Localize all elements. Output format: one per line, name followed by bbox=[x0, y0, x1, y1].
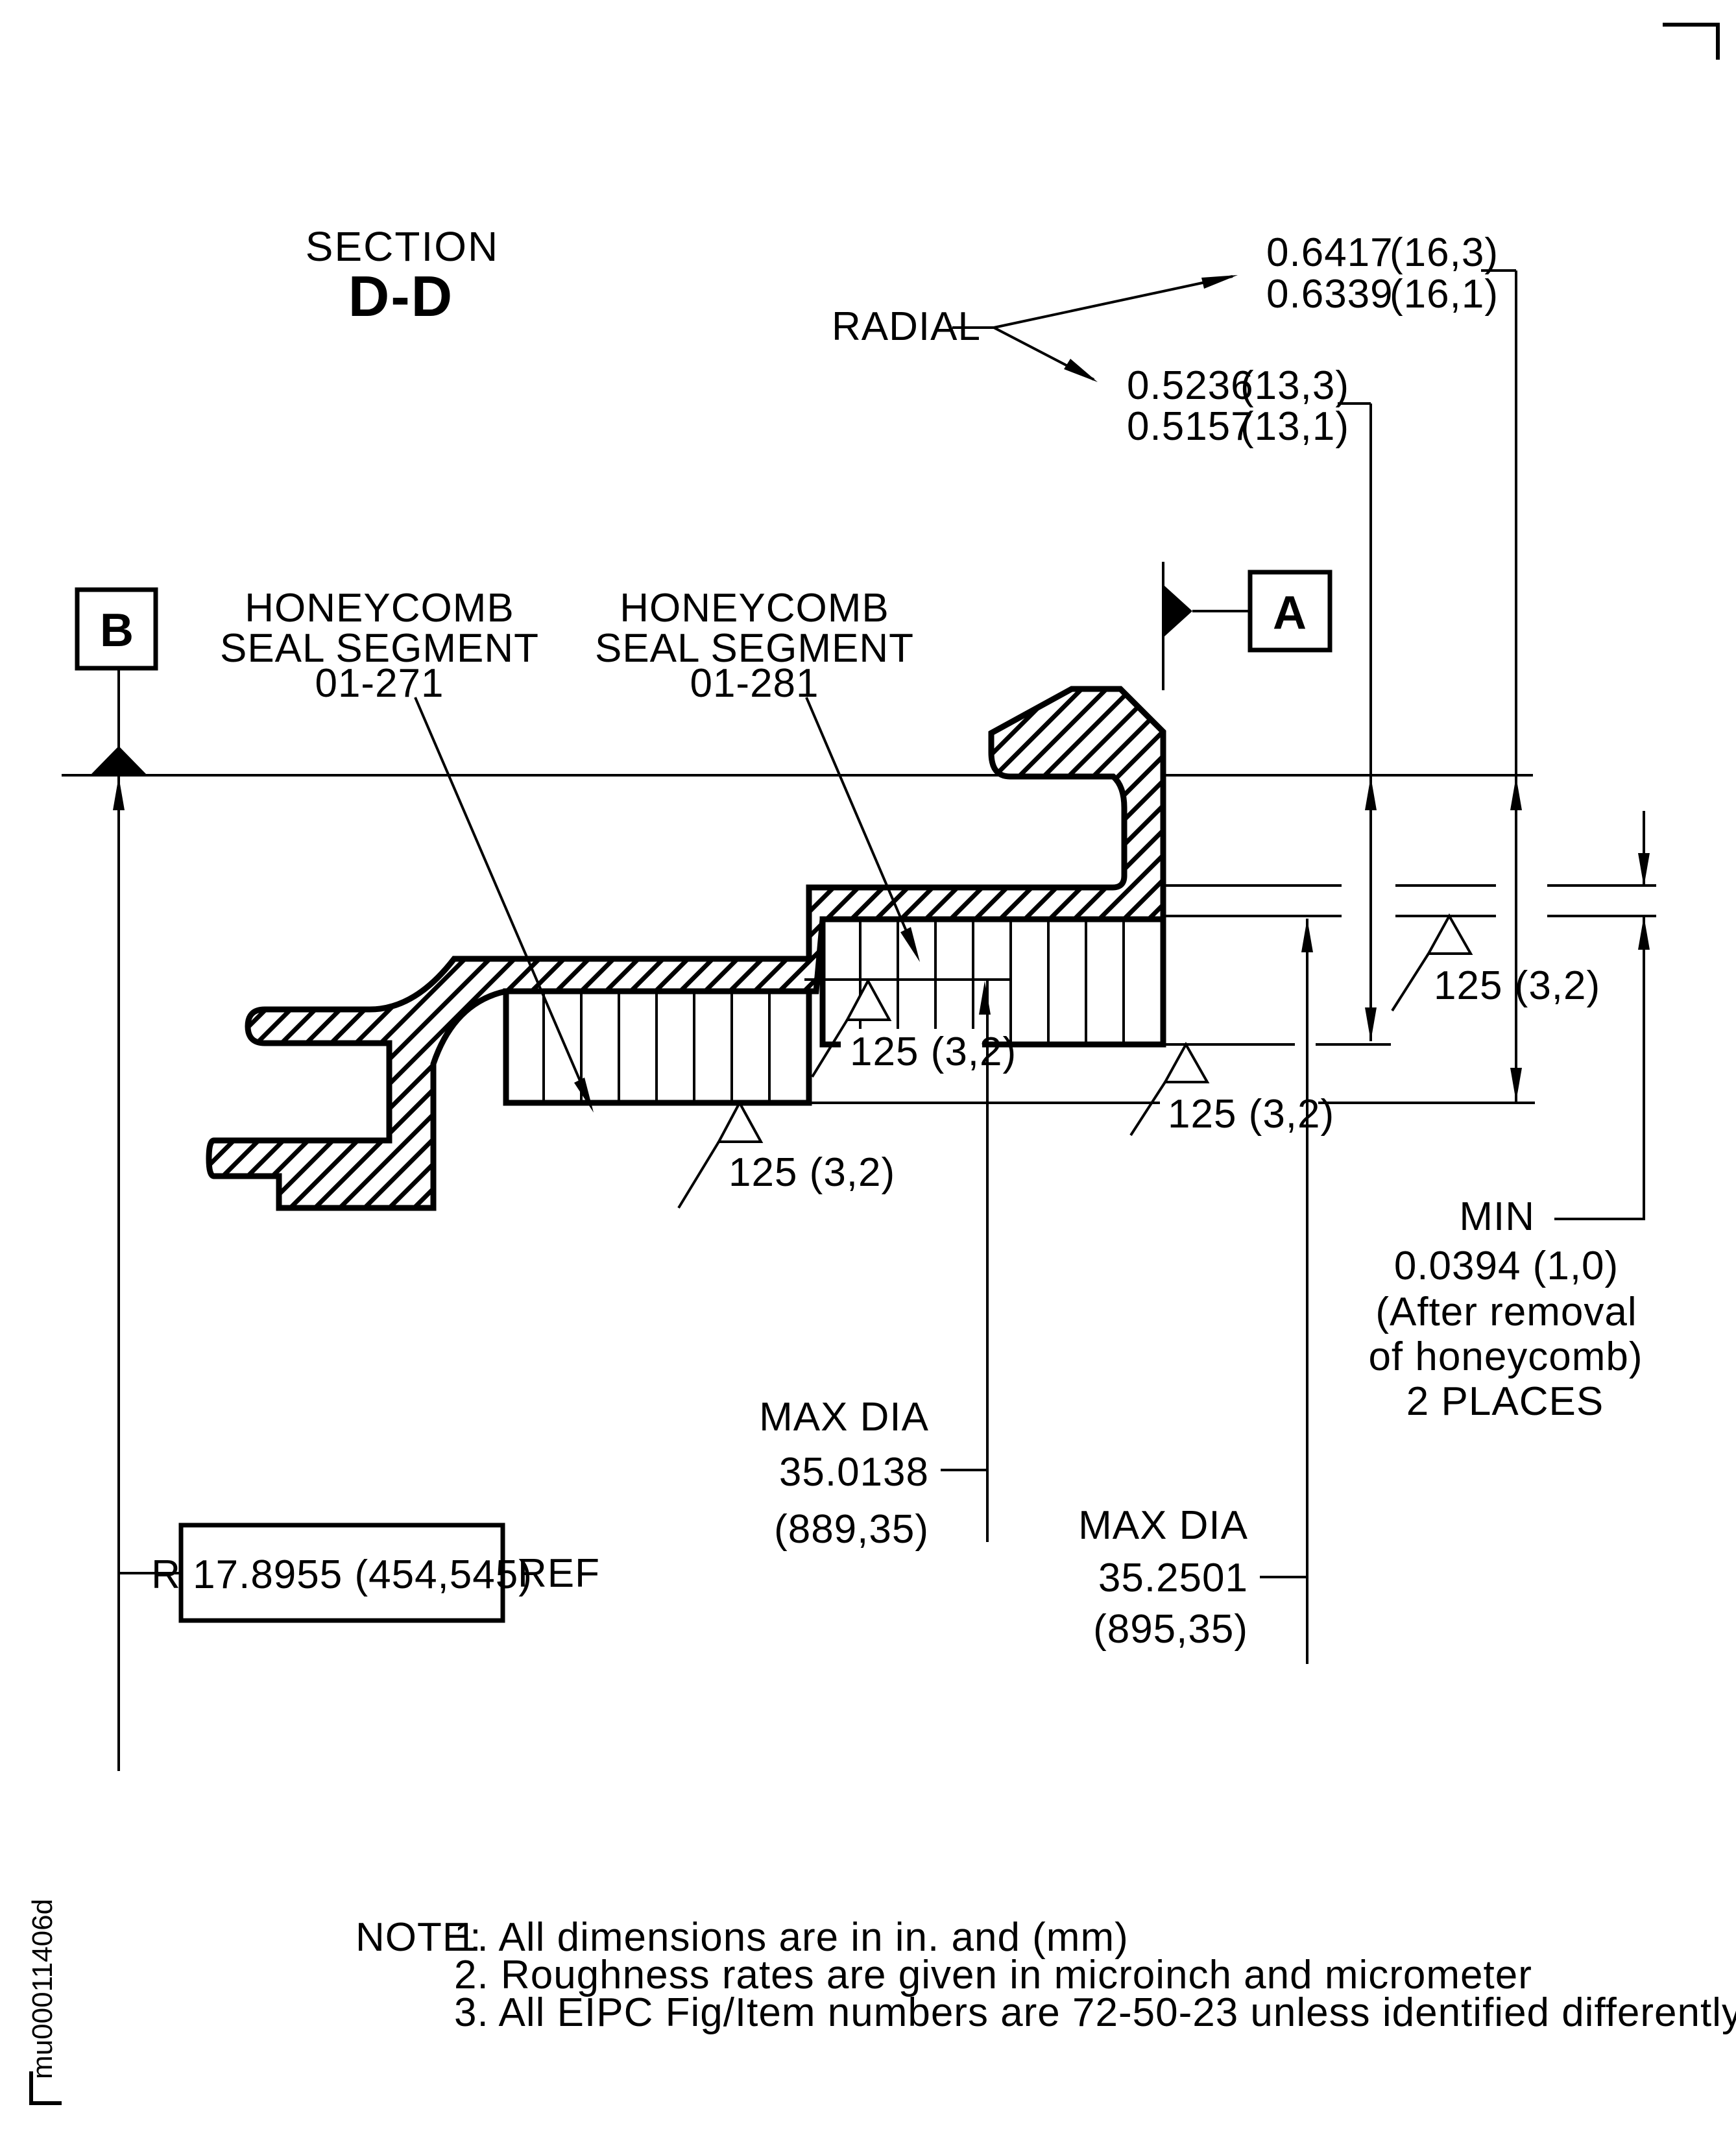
segment-left-line1: HONEYCOMB bbox=[245, 586, 514, 631]
min-value: 0.0394 (1,0) bbox=[1394, 1244, 1619, 1288]
min-note-line2: of honeycomb) bbox=[1368, 1334, 1643, 1379]
min-label: MIN bbox=[1459, 1194, 1535, 1239]
corner-mark-top-right bbox=[1663, 25, 1718, 60]
figure-id-code: mu00011406d bbox=[27, 1899, 58, 2079]
section-dd-drawing: mu00011406d SECTION D-D B A bbox=[0, 0, 1736, 2133]
min-places: 2 PLACES bbox=[1406, 1379, 1604, 1424]
radial-inner-up-arrow-icon bbox=[1365, 777, 1377, 810]
radial-inner-down-arrow-icon bbox=[1365, 1007, 1377, 1041]
radial-upper-min-mm: (16,1) bbox=[1390, 272, 1499, 317]
radial-upper-min-in: 0.6339 bbox=[1266, 272, 1393, 317]
roughness-band-value: 125 (3,2) bbox=[1434, 963, 1600, 1008]
roughness-inner-leader bbox=[1131, 1082, 1165, 1135]
max-dia-inner-line2: 35.0138 bbox=[779, 1450, 929, 1495]
radial-lower-values: 0.5236 (13,3) 0.5157 (13,1) bbox=[1127, 363, 1349, 449]
max-dia-outer-line2: 35.2501 bbox=[1098, 1556, 1248, 1600]
notes-block: NOTE: 1. All dimensions are in in. and (… bbox=[356, 1915, 1736, 2035]
honeycomb-right-border bbox=[823, 919, 1163, 1044]
datum-b: B bbox=[77, 590, 156, 774]
roughness-outer-leader bbox=[679, 1142, 719, 1208]
radius-ref-value: R 17.8955 (454,545) bbox=[151, 1552, 533, 1597]
roughness-band-leader bbox=[1392, 954, 1429, 1011]
roughness-outer-value: 125 (3,2) bbox=[729, 1150, 895, 1195]
min-down-arrow-icon bbox=[1638, 853, 1650, 887]
section-label: SECTION bbox=[306, 223, 499, 270]
note-item-3: 3. All EIPC Fig/Item numbers are 72-50-2… bbox=[454, 1990, 1736, 2035]
roughness-inner-value: 125 (3,2) bbox=[1168, 1092, 1334, 1137]
radial-upper-max-mm: (16,3) bbox=[1390, 230, 1499, 275]
honeycomb-block-left bbox=[506, 991, 809, 1103]
roughness-bore-value: 125 (3,2) bbox=[850, 1030, 1017, 1074]
segment-left-line3: 01-271 bbox=[315, 661, 444, 706]
radial-upper-max-in: 0.6417 bbox=[1266, 230, 1393, 275]
radial-arrow-upper-icon bbox=[1201, 275, 1238, 289]
radial-arrow-lower-icon bbox=[1064, 359, 1098, 382]
max-dia-outer-arrow-icon bbox=[1301, 919, 1313, 952]
datum-a-triangle-icon bbox=[1164, 586, 1192, 636]
max-dia-inner-line3: (889,35) bbox=[774, 1507, 929, 1552]
datum-b-triangle-icon bbox=[91, 746, 146, 774]
max-dia-outer-line3: (895,35) bbox=[1093, 1607, 1248, 1652]
roughness-band-triangle-icon bbox=[1429, 916, 1471, 954]
radius-ref-callout: R 17.8955 (454,545) REF bbox=[151, 1525, 600, 1621]
radial-outer-down-arrow-icon bbox=[1510, 1068, 1522, 1102]
radial-lower-min-in: 0.5157 bbox=[1127, 404, 1254, 449]
segment-right-line3: 01-281 bbox=[690, 661, 819, 706]
min-callout: MIN 0.0394 (1,0) (After removal of honey… bbox=[1368, 811, 1650, 1424]
datum-b-label: B bbox=[100, 605, 134, 657]
radial-lower-max-mm: (13,3) bbox=[1240, 363, 1349, 408]
radius-up-arrow-icon bbox=[113, 777, 125, 810]
honeycomb-block-right bbox=[823, 919, 1163, 1044]
section-name: D-D bbox=[348, 264, 453, 328]
engineering-drawing-page: mu00011406d SECTION D-D B A bbox=[0, 0, 1736, 2133]
section-title: SECTION D-D bbox=[306, 223, 499, 328]
min-note-line1: (After removal bbox=[1375, 1290, 1637, 1334]
radial-outer-up-arrow-icon bbox=[1510, 777, 1522, 810]
datum-a-label: A bbox=[1273, 587, 1307, 639]
radial-lower-min-mm: (13,1) bbox=[1240, 404, 1349, 449]
datum-a: A bbox=[1163, 562, 1330, 690]
min-up-arrow-icon bbox=[1638, 916, 1650, 950]
roughness-callout-inner-honeycomb: 125 (3,2) bbox=[1131, 1044, 1334, 1137]
roughness-callout-band: 125 (3,2) bbox=[1392, 916, 1600, 1011]
max-dia-inner-line1: MAX DIA bbox=[759, 1395, 929, 1440]
roughness-inner-triangle-icon bbox=[1165, 1044, 1207, 1082]
roughness-outer-triangle-icon bbox=[719, 1103, 761, 1142]
radial-upper-values: 0.6417 (16,3) 0.6339 (16,1) bbox=[1266, 230, 1499, 317]
radial-lower-max-in: 0.5236 bbox=[1127, 363, 1254, 408]
segment-right-line1: HONEYCOMB bbox=[620, 586, 889, 631]
roughness-callout-outer-honeycomb: 125 (3,2) bbox=[679, 1103, 895, 1208]
radius-ref-suffix: REF bbox=[518, 1551, 600, 1596]
max-dia-outer-line1: MAX DIA bbox=[1078, 1503, 1248, 1548]
min-leader-elbow bbox=[1554, 917, 1644, 1219]
